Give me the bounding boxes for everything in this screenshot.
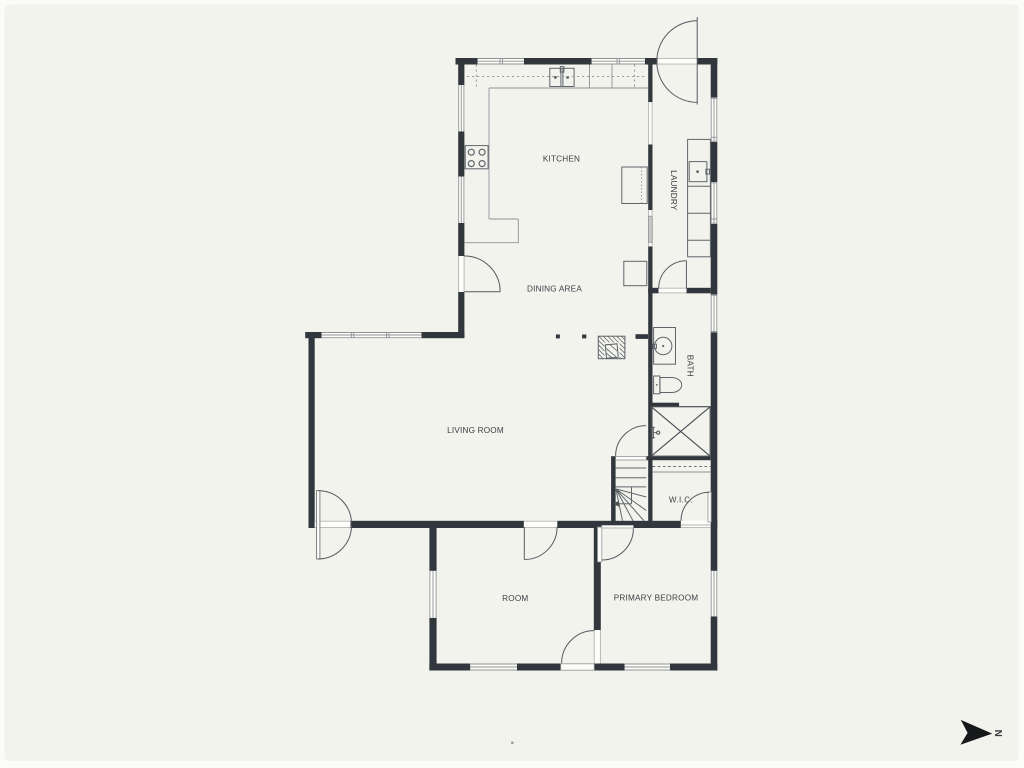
svg-text:ROOM: ROOM xyxy=(502,594,528,603)
svg-text:N: N xyxy=(992,730,1003,737)
svg-text:PRIMARY BEDROOM: PRIMARY BEDROOM xyxy=(614,594,699,603)
svg-text:LIVING ROOM: LIVING ROOM xyxy=(447,426,504,435)
svg-text:KITCHEN: KITCHEN xyxy=(543,155,580,164)
svg-text:DINING AREA: DINING AREA xyxy=(527,285,582,294)
svg-text:LAUNDRY: LAUNDRY xyxy=(669,170,678,211)
svg-text:BATH: BATH xyxy=(686,355,695,377)
svg-text:W.I.C.: W.I.C. xyxy=(669,495,693,504)
